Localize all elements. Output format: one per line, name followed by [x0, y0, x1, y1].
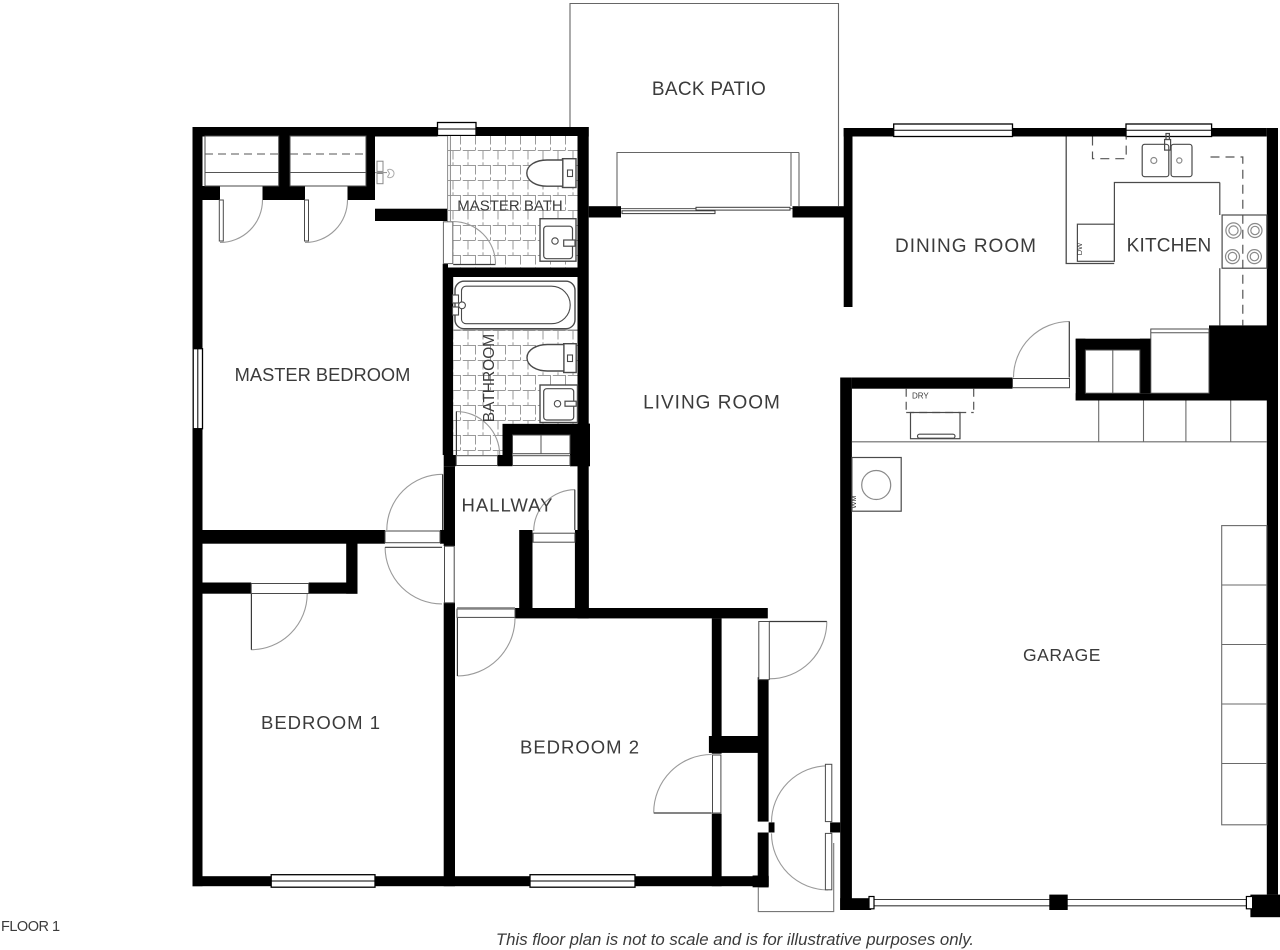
svg-text:LIVING ROOM: LIVING ROOM [643, 393, 781, 414]
svg-text:BACK PATIO: BACK PATIO [652, 79, 766, 100]
svg-text:DINING ROOM: DINING ROOM [895, 236, 1037, 257]
svg-text:GARAGE: GARAGE [1023, 645, 1101, 665]
svg-text:BATHROOM: BATHROOM [481, 334, 498, 422]
svg-text:WM: WM [849, 495, 858, 508]
svg-text:MASTER BATH: MASTER BATH [457, 198, 563, 215]
svg-text:DW: DW [1075, 242, 1084, 255]
svg-text:KITCHEN: KITCHEN [1127, 236, 1212, 257]
svg-text:BEDROOM 2: BEDROOM 2 [520, 737, 640, 758]
svg-text:This floor plan is not to scal: This floor plan is not to scale and is f… [496, 930, 974, 949]
svg-text:HALLWAY: HALLWAY [462, 495, 554, 516]
svg-text:MASTER BEDROOM: MASTER BEDROOM [235, 364, 411, 385]
svg-text:DRY: DRY [912, 392, 929, 401]
svg-text:BEDROOM 1: BEDROOM 1 [261, 712, 381, 733]
svg-text:FLOOR 1: FLOOR 1 [1, 919, 60, 935]
